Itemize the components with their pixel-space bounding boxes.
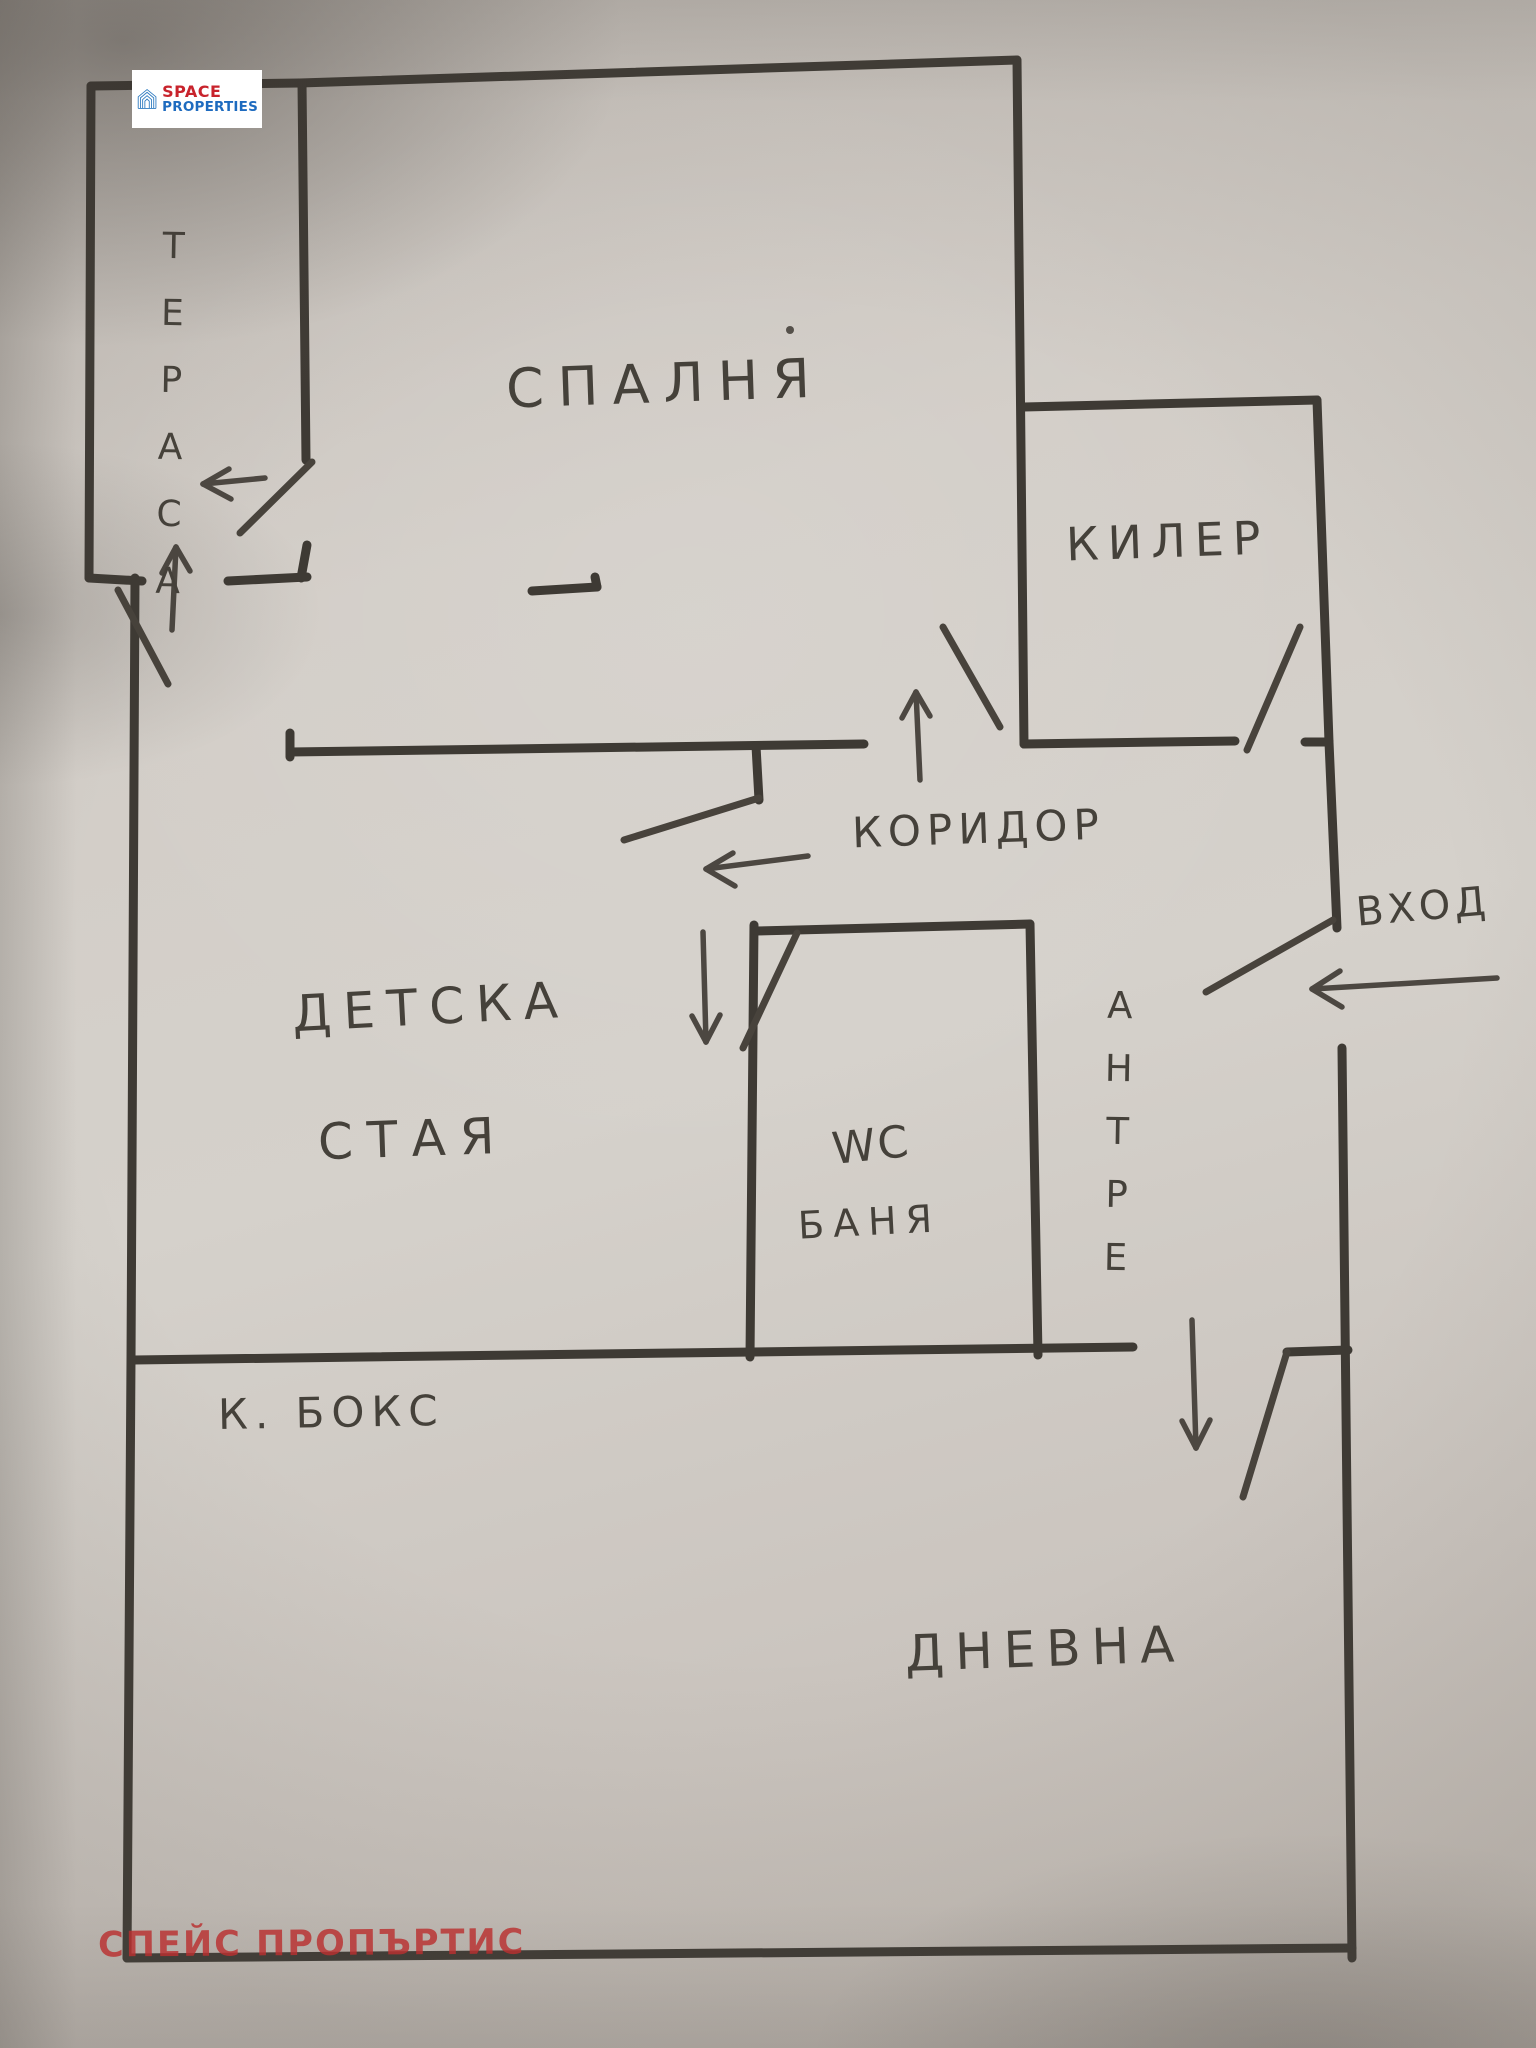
wall-segment: [127, 1360, 131, 1958]
door-leaf: [1247, 627, 1300, 750]
room-label-terrace: ТЕРАСА: [146, 226, 194, 629]
watermark-text: СПЕЙС ПРОПЪРТИС: [98, 1923, 526, 1966]
wall-segment: [290, 744, 864, 752]
room-label-hallway: АНТРЕ: [1093, 984, 1141, 1300]
wall-segment: [228, 577, 307, 581]
wall-segment: [1030, 924, 1038, 1355]
wall-segment: [532, 587, 597, 591]
wall-segment: [1024, 400, 1317, 407]
wall-segment: [301, 545, 307, 578]
wall-segment: [134, 1347, 1133, 1360]
pencil-dot: [786, 326, 794, 334]
room-label-closet: КИЛЕР: [1065, 510, 1270, 571]
agency-logo: SPACE PROPERTIES: [132, 70, 262, 128]
logo-text: SPACE PROPERTIES: [162, 84, 258, 115]
wall-segment: [1017, 60, 1024, 744]
wall-segment: [1342, 1048, 1352, 1958]
wall-segment: [756, 746, 759, 800]
door-leaf: [943, 627, 1000, 727]
floor-plan-drawing: [0, 0, 1536, 2048]
wall-segment: [302, 83, 306, 460]
room-label-bath: БАНЯ: [797, 1196, 942, 1247]
wall-segment: [1329, 742, 1337, 928]
door-leaf: [1206, 920, 1333, 992]
wall-segment: [300, 60, 1017, 83]
arrow-to-terrace-left: [203, 469, 265, 499]
arrow-to-bedroom: [902, 692, 930, 780]
wall-segment: [1024, 741, 1235, 744]
arrow-to-living-room: [1182, 1320, 1210, 1448]
logo-text-space: SPACE: [162, 84, 258, 101]
logo-text-properties: PROPERTIES: [162, 100, 258, 114]
room-label-kids-room-line2: СТАЯ: [317, 1107, 509, 1172]
room-label-wc: WC: [830, 1116, 913, 1175]
wall-segment: [1287, 1350, 1348, 1352]
arrow-to-bathroom: [692, 932, 720, 1042]
wall-segment: [595, 577, 597, 587]
direction-arrows: [162, 469, 1497, 1448]
room-label-corridor: КОРИДОР: [851, 800, 1105, 858]
door-leaf: [240, 462, 312, 533]
room-label-living-room: ДНЕВНА: [904, 1615, 1186, 1683]
arrow-entrance: [1312, 971, 1497, 1007]
house-icon: [136, 78, 158, 120]
wall-segment: [131, 578, 135, 1360]
floor-plan-photo: ТЕРАСА СПАЛНЯ КИЛЕР КОРИДОР ВХОД АНТРЕ Д…: [0, 0, 1536, 2048]
room-label-kitchen-box: К. БОКС: [218, 1386, 445, 1439]
wall-segment: [750, 925, 754, 1357]
wall-segment: [89, 86, 91, 578]
wall-segment: [1317, 400, 1329, 742]
door-leaf: [624, 798, 759, 840]
room-label-bedroom: СПАЛНЯ: [505, 346, 825, 420]
arrow-to-kids-room: [706, 853, 808, 886]
door-leaf: [1243, 1352, 1287, 1497]
door-swings: [118, 462, 1333, 1497]
